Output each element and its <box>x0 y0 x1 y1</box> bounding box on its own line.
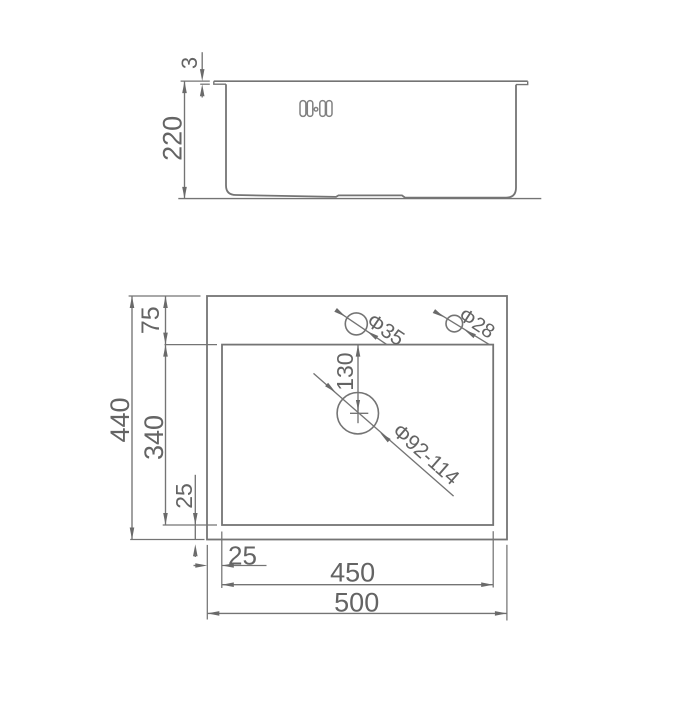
svg-text:500: 500 <box>334 588 379 618</box>
svg-text:25: 25 <box>228 541 257 571</box>
svg-text:75: 75 <box>137 306 165 334</box>
svg-text:440: 440 <box>105 397 135 442</box>
svg-text:3: 3 <box>177 57 202 69</box>
svg-text:25: 25 <box>171 483 197 509</box>
svg-text:450: 450 <box>330 557 375 587</box>
svg-text:340: 340 <box>139 415 169 460</box>
svg-text:Φ92-114: Φ92-114 <box>388 419 464 490</box>
svg-text:220: 220 <box>157 116 187 161</box>
svg-text:130: 130 <box>332 352 358 390</box>
